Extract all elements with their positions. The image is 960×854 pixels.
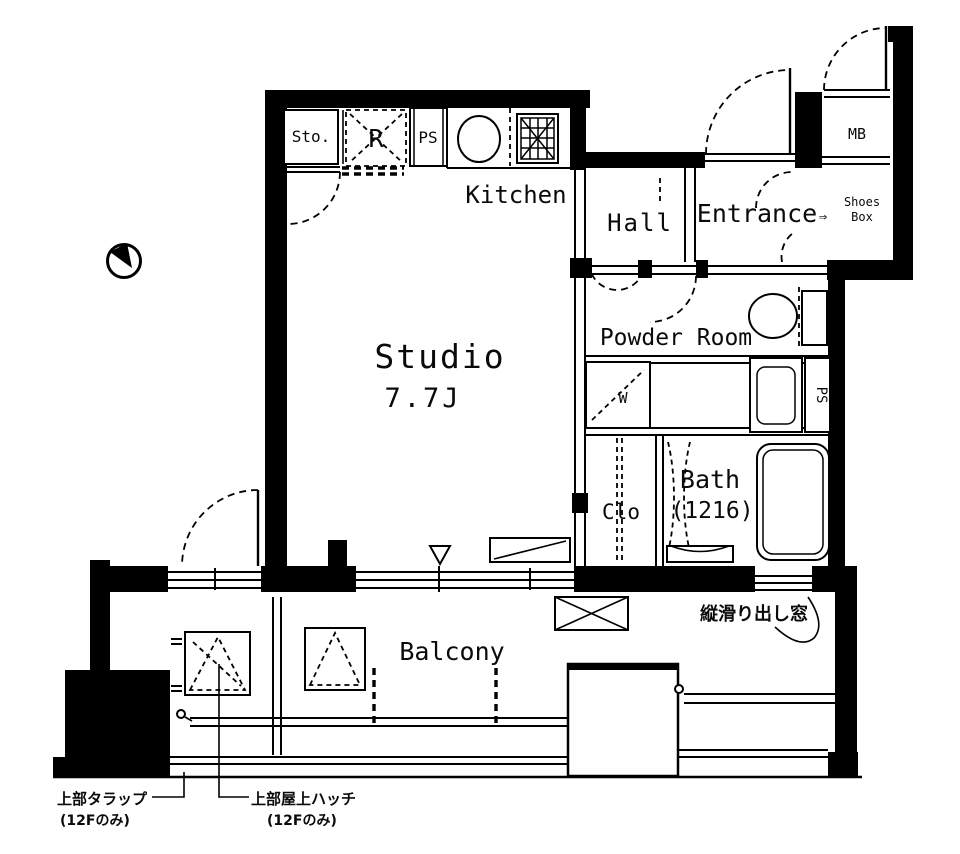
storage-door-arc [288, 172, 340, 224]
entrance-arrow-icon: ⇒ [819, 209, 827, 225]
roof-hatch-solid [305, 628, 365, 690]
shoes-box-label-1: Shoes [844, 195, 880, 209]
hatch-note-line1: 上部屋上ハッチ [251, 790, 356, 808]
closet-label: Clo [602, 500, 640, 524]
washer-label: W [618, 389, 628, 407]
window-left [167, 566, 262, 592]
entrance-door-arc [706, 70, 790, 154]
neighbor-door-arc [182, 490, 258, 566]
bath-label: Bath [680, 465, 740, 494]
entrance-inner-arc-2 [782, 233, 793, 262]
stove-icon [517, 114, 558, 163]
bathtub-icon [757, 444, 829, 560]
studio-size-label: 7.7J [384, 383, 461, 414]
balcony-railing [53, 685, 862, 777]
studio-fixtures [430, 538, 570, 564]
ladder-note-line1: 上部タラップ [57, 790, 148, 808]
hall-label: Hall [607, 209, 673, 237]
entrance-label: Entrance [697, 199, 817, 228]
meter-box-label: MB [848, 125, 866, 143]
bath-folding-door-left [668, 442, 674, 552]
bath-size-label: (1216) [670, 498, 753, 524]
storage-label: Sto. [292, 127, 331, 146]
balcony-label: Balcony [399, 637, 504, 666]
hatch-note-line2: (12Fのみ) [267, 813, 337, 829]
window-center-marker [430, 546, 450, 564]
shoes-box-label-2: Box [851, 210, 873, 224]
ladder-note-line2: (12Fのみ) [60, 813, 130, 829]
balcony-fixtures [53, 597, 862, 797]
window-studio-sliding [355, 566, 575, 592]
mb-door-arc [824, 28, 886, 90]
window-bath-casement [755, 576, 812, 590]
bath-step [667, 546, 733, 562]
toilet-icon [749, 287, 827, 348]
pipe-space-top-label: PS [418, 128, 437, 147]
balcony-threshold [490, 538, 570, 562]
bath-folding-door-right [684, 442, 690, 552]
kitchen-label: Kitchen [465, 181, 566, 209]
pipe-space-side-label: PS [813, 387, 829, 404]
floor-plan: Sto. R PS Kitchen Hall Entrance ⇒ MB Sho… [0, 0, 960, 854]
refrigerator-label: R [368, 124, 384, 153]
floor-plan-page: Sto. R PS Kitchen Hall Entrance ⇒ MB Sho… [0, 0, 960, 854]
balcony-equipment-box [568, 664, 678, 776]
studio-label: Studio [374, 337, 505, 376]
roof-hatch-dashed [171, 632, 250, 695]
powder-room-label: Powder Room [600, 325, 752, 351]
kitchen-sink-icon [458, 116, 500, 162]
powder-room-door-arc [650, 276, 696, 322]
vanity-sink-icon [750, 358, 802, 432]
annotation-leader-lines [152, 597, 819, 797]
window-note-label: 縦滑り出し窓 [700, 603, 808, 625]
north-compass-icon [108, 243, 141, 278]
ac-unit-box [555, 597, 628, 630]
